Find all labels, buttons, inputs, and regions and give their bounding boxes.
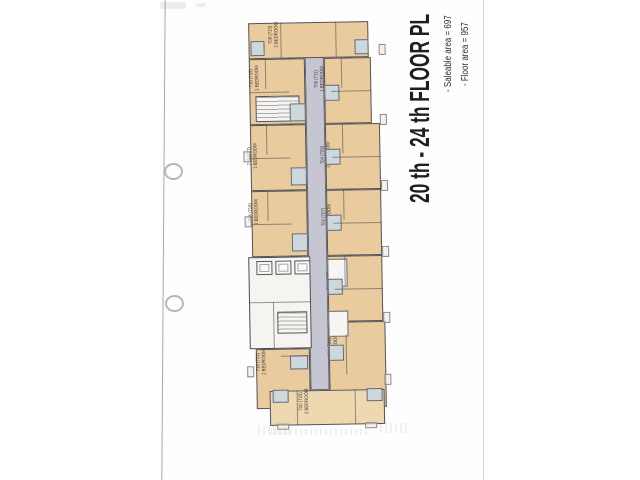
bathroom	[290, 103, 306, 121]
bathroom	[290, 355, 308, 369]
balcony-ledge	[365, 422, 377, 428]
unit-label-text: 720 (725) 2 BEDROOM	[299, 383, 311, 421]
balcony-ledge	[381, 180, 388, 191]
floor-plan: 708 (713) 2 BEDROOM710 (715) 1 BEDROOM71…	[240, 14, 407, 437]
page-title-text: 20 th - 24 th FLOOR PL	[404, 14, 436, 203]
smudge	[196, 3, 206, 7]
bathroom	[250, 41, 264, 56]
page-title: 20 th - 24 th FLOOR PL	[404, 8, 436, 203]
saleable-area-note: - Saleable area = 697	[443, 8, 454, 92]
unit-label-text: 708 (713) 2 BEDROOM	[268, 16, 280, 54]
balcony-ledge	[383, 312, 390, 323]
balcony-ledge	[382, 246, 389, 257]
bathroom	[329, 345, 344, 361]
punch-hole	[165, 295, 184, 312]
bathroom	[324, 85, 339, 101]
unit-room	[248, 21, 369, 59]
balcony-ledge	[380, 114, 387, 125]
balcony-ledge	[379, 44, 386, 55]
floor-area-note: - Floor area = 957	[460, 22, 471, 86]
floor-area-text: - Floor area = 957	[460, 22, 471, 86]
bathroom	[354, 39, 368, 54]
balcony-ledge	[245, 216, 252, 227]
bathroom	[328, 279, 343, 295]
punch-hole	[164, 163, 183, 180]
staircase	[277, 311, 307, 334]
bathroom	[291, 167, 307, 185]
elevator-shaft	[294, 260, 310, 274]
elevator-shaft	[256, 261, 272, 275]
balcony-ledge	[247, 366, 254, 377]
sheet-right-edge	[483, 0, 484, 480]
bathroom	[292, 233, 308, 251]
balcony-ledge	[384, 374, 391, 385]
balcony-ledge	[243, 151, 250, 162]
utility-room	[328, 311, 348, 337]
bathroom	[367, 388, 383, 401]
smudge	[160, 2, 186, 9]
bathroom	[273, 390, 289, 403]
elevator-shaft	[275, 261, 291, 275]
saleable-area-text: - Saleable area = 697	[443, 15, 454, 92]
balcony-ledge	[277, 424, 289, 430]
